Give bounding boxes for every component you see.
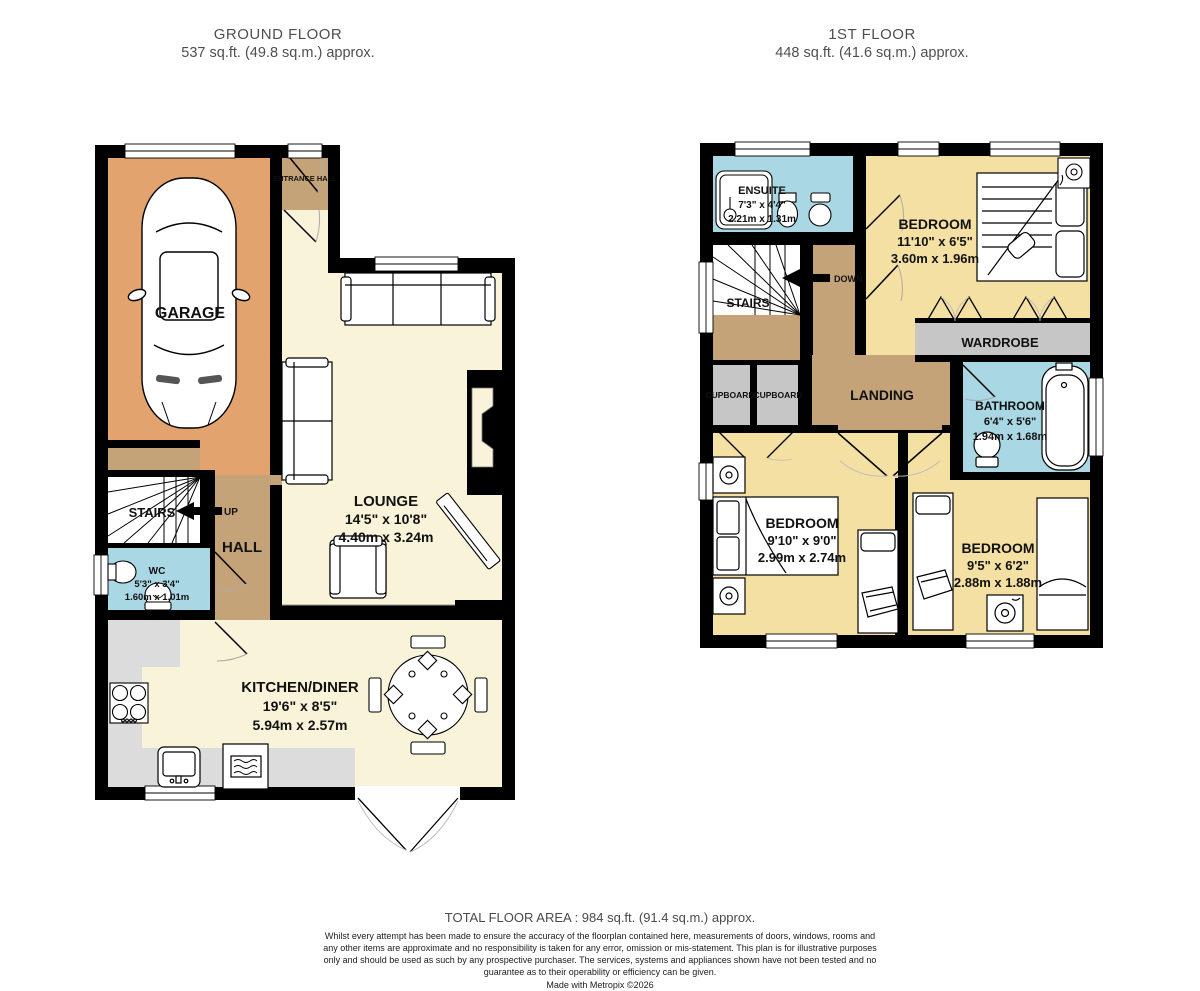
bedroom3-label: BEDROOM xyxy=(961,540,1034,556)
landing-label: LANDING xyxy=(850,387,914,403)
ensuite-metric: 2.21m x 1.31m xyxy=(728,214,796,225)
landing-below-stairs xyxy=(713,315,800,360)
bedroom1-corner-unit xyxy=(1058,158,1090,188)
bedroom3-metric: 2.88m x 1.88m xyxy=(954,575,1042,590)
ground-floor-plan: GARAGE ENTRANCE HALL LOUNGE 14'5" x 10'8… xyxy=(90,140,520,865)
sofa-top xyxy=(341,273,495,325)
ground-floor-header: GROUND FLOOR 537 sq.ft. (49.8 sq.m.) app… xyxy=(78,26,478,61)
french-doors xyxy=(358,798,458,852)
lounge-metric: 4.40m x 3.24m xyxy=(339,529,434,545)
bathroom-label: BATHROOM xyxy=(975,399,1045,413)
first-stairs-label: STAIRS xyxy=(726,296,769,310)
car xyxy=(127,178,251,428)
oven xyxy=(223,744,268,789)
garage-step xyxy=(200,440,270,475)
bedroom1-metric: 3.60m x 1.96m xyxy=(891,251,979,266)
made-with-credit: Made with Metropix ©2026 xyxy=(0,980,1200,990)
wardrobe-label: WARDROBE xyxy=(961,335,1039,350)
bedroom1-bed xyxy=(977,173,1087,281)
bedroom1-window-a xyxy=(898,142,939,156)
ground-floor-title: GROUND FLOOR xyxy=(78,26,478,43)
bathroom-window xyxy=(1089,378,1103,456)
footer: TOTAL FLOOR AREA : 984 sq.ft. (91.4 sq.m… xyxy=(0,910,1200,990)
entrance-corridor xyxy=(282,210,328,273)
bedroom2-label: BEDROOM xyxy=(765,515,838,531)
bedroom2-window xyxy=(766,634,837,648)
ground-floor-area: 537 sq.ft. (49.8 sq.m.) approx. xyxy=(78,45,478,61)
wc-metric: 1.60m x 1.01m xyxy=(125,592,189,603)
entrance-hall-label: ENTRANCE HALL xyxy=(273,174,337,183)
wc-imperial: 5'3" x 3'4" xyxy=(134,579,179,590)
entrance-window xyxy=(288,144,322,158)
hall-label: HALL xyxy=(222,539,262,556)
landing-corridor xyxy=(813,245,855,365)
garage-label: GARAGE xyxy=(155,305,226,322)
disclaimer-text: Whilst every attempt has been made to en… xyxy=(320,931,880,979)
bedroom3-imperial: 9'5" x 6'2" xyxy=(967,558,1029,573)
down-label: DOWN xyxy=(834,274,863,284)
ensuite-window xyxy=(735,142,810,156)
floorplan-page: GROUND FLOOR 537 sq.ft. (49.8 sq.m.) app… xyxy=(0,0,1200,991)
stairs-window xyxy=(699,262,713,333)
fireplace xyxy=(467,370,502,495)
kitchen-counter-top xyxy=(108,620,180,667)
bedroom2-metric: 2.99m x 2.74m xyxy=(758,550,846,565)
cupboard-right-label: CUPBOARD xyxy=(753,390,802,400)
first-floor-header: 1ST FLOOR 448 sq.ft. (41.6 sq.m.) approx… xyxy=(672,26,1072,61)
hall-strip xyxy=(108,448,200,470)
stove xyxy=(110,683,148,723)
garage-door-window xyxy=(125,144,235,158)
cupboard-left-label: CUPBOARD xyxy=(705,390,754,400)
bedroom3-window xyxy=(966,634,1034,648)
bathroom-imperial: 6'4" x 5'6" xyxy=(984,416,1036,428)
bathroom-metric: 1.94m x 1.68m xyxy=(973,431,1048,443)
stairs-label: STAIRS xyxy=(129,505,176,520)
kitchen-imperial: 19'6" x 8'5" xyxy=(263,698,337,714)
first-floor-plan: ENSUITE 7'3" x 4'4" 2.21m x 1.31m BEDROO… xyxy=(690,135,1110,655)
sofa-left xyxy=(282,358,332,484)
sink xyxy=(158,747,200,787)
kitchen-label: KITCHEN/DINER xyxy=(241,679,359,696)
french-door-opening xyxy=(355,786,460,800)
armchair xyxy=(330,536,386,598)
first-floor-title: 1ST FLOOR xyxy=(672,26,1072,43)
wc-window xyxy=(94,555,108,595)
lounge-window xyxy=(375,257,458,271)
bedroom1-window-b xyxy=(990,142,1060,156)
first-floor-area: 448 sq.ft. (41.6 sq.m.) approx. xyxy=(672,45,1072,61)
total-floor-area: TOTAL FLOOR AREA : 984 sq.ft. (91.4 sq.m… xyxy=(0,910,1200,925)
ensuite-imperial: 7'3" x 4'4" xyxy=(738,200,786,211)
bedroom1-label: BEDROOM xyxy=(898,216,971,232)
kitchen-metric: 5.94m x 2.57m xyxy=(253,717,348,733)
up-label: UP xyxy=(224,507,238,518)
bedroom2-side-window xyxy=(699,463,713,500)
wc-label: WC xyxy=(149,566,166,577)
kitchen-window xyxy=(145,786,215,800)
lounge-imperial: 14'5" x 10'8" xyxy=(345,511,427,527)
ensuite-label: ENSUITE xyxy=(738,185,786,197)
lounge-label: LOUNGE xyxy=(354,493,418,510)
bedroom1-imperial: 11'10" x 6'5" xyxy=(897,234,973,249)
bedroom2-imperial: 9'10" x 9'0" xyxy=(767,533,836,548)
